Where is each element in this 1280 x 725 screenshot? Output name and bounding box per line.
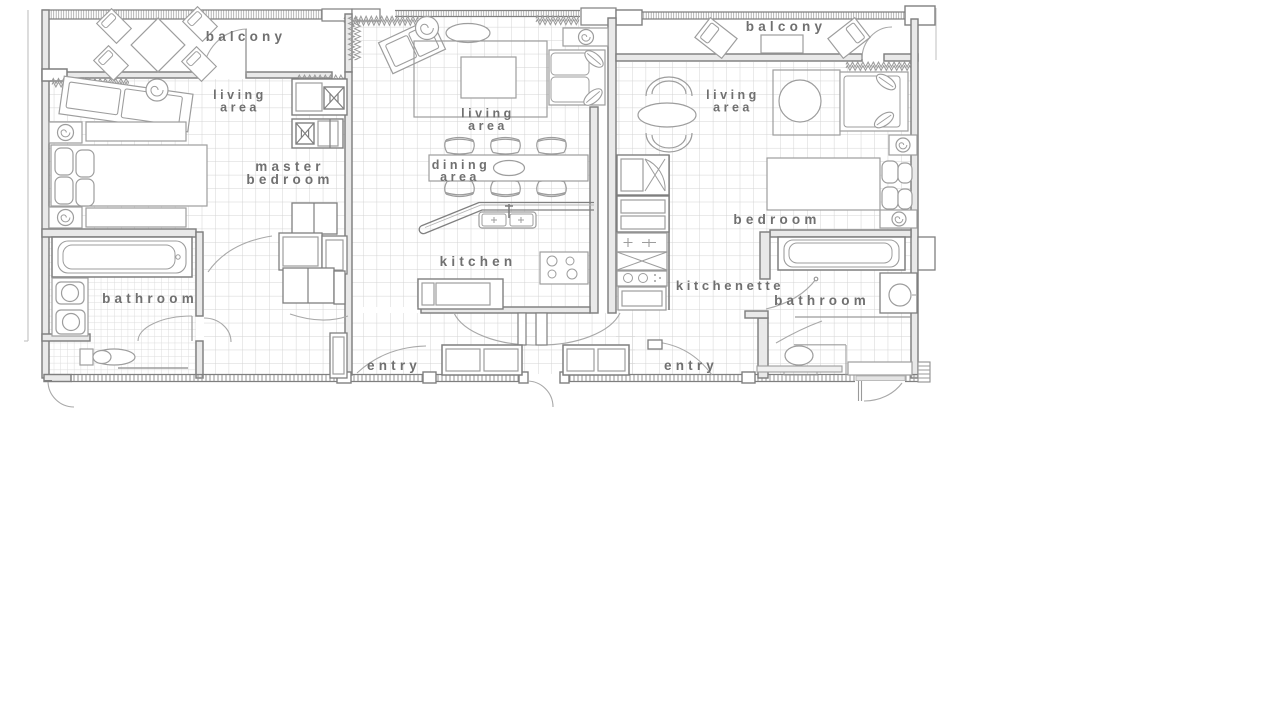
svg-text:kitchen: kitchen <box>440 254 517 269</box>
svg-text:balcony: balcony <box>206 29 286 44</box>
svg-text:area: area <box>220 101 260 115</box>
svg-text:entry: entry <box>367 358 421 373</box>
svg-text:entry: entry <box>664 358 718 373</box>
svg-text:bathroom: bathroom <box>774 293 870 308</box>
svg-text:balcony: balcony <box>746 19 826 34</box>
svg-text:bathroom: bathroom <box>102 291 198 306</box>
svg-text:area: area <box>468 119 508 133</box>
svg-text:area: area <box>713 101 753 115</box>
svg-text:area: area <box>440 170 480 184</box>
svg-text:kitchenette: kitchenette <box>676 278 784 293</box>
svg-text:bedroom: bedroom <box>246 172 333 187</box>
svg-text:bedroom: bedroom <box>733 212 820 227</box>
